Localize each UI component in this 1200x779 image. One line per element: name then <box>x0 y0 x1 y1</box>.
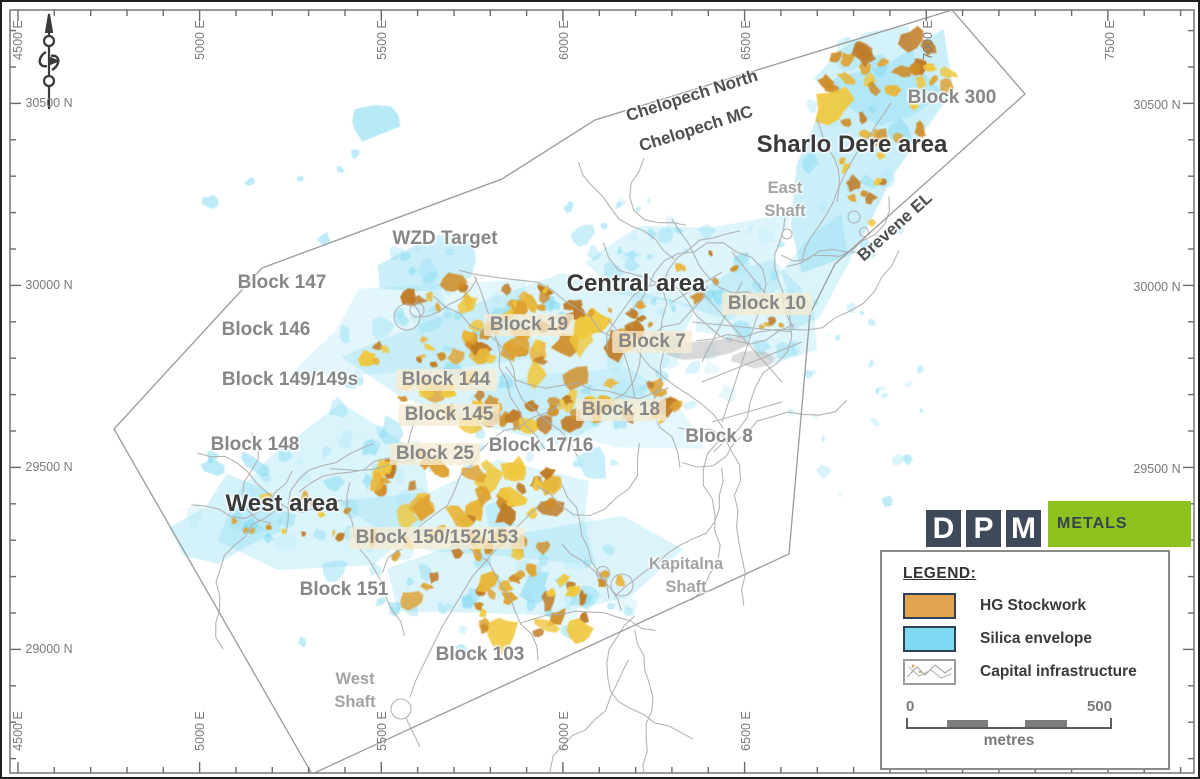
scale-numbers: 0 500 <box>906 698 1112 715</box>
map-label-block: Block 10 <box>722 293 812 315</box>
map-label-area: Sharlo Dere area <box>757 131 948 159</box>
grid-label-northing: 29500 N <box>1133 462 1180 476</box>
map-label-block: Block 17/16 <box>489 435 594 457</box>
map-label-block: Block 144 <box>396 369 497 391</box>
logo-wordmark-box: METALS <box>1048 501 1191 547</box>
logo-letter: M <box>1006 510 1041 547</box>
grid-label-easting: 6500 E <box>739 20 753 60</box>
grid-label-easting: 6000 E <box>557 20 571 60</box>
scale-bar: 0 500 metres <box>906 698 1112 750</box>
scale-bar-graphic <box>906 717 1112 729</box>
legend-item-hg-stockwork: HG Stockwork <box>903 593 1168 619</box>
legend-title: LEGEND: <box>903 565 1168 583</box>
grid-label-northing: 30000 N <box>1133 280 1180 294</box>
legend-label: HG Stockwork <box>980 597 1086 615</box>
grid-label-northing: 29000 N <box>25 642 72 656</box>
grid-label-easting: 6000 E <box>557 711 571 751</box>
grid-label-northing: 30000 N <box>25 278 72 292</box>
map-label-block: Block 149/149s <box>222 369 358 391</box>
map-label-shaft: EastShaft <box>764 177 805 223</box>
map-label-block: Block 19 <box>484 314 574 336</box>
map-label-block: Block 146 <box>222 319 311 341</box>
map-label-area: West area <box>226 490 339 518</box>
map-label-shaft: WestShaft <box>334 668 375 714</box>
grid-label-northing: 29500 N <box>25 460 72 474</box>
legend-panel: LEGEND: HG StockworkSilica envelopeCapit… <box>880 550 1170 770</box>
legend-swatch-capital-infrastructure <box>903 659 956 685</box>
map-label-block: Block 148 <box>211 434 300 456</box>
scale-start: 0 <box>906 698 914 715</box>
legend-label: Capital infrastructure <box>980 663 1137 681</box>
map-label-shaft: KapitalnaShaft <box>649 553 723 599</box>
grid-label-easting: 5000 E <box>193 711 207 751</box>
logo-wordmark: METALS <box>1057 515 1128 533</box>
logo-letter: P <box>966 510 1001 547</box>
scale-unit: metres <box>906 732 1112 750</box>
grid-label-northing: 30500 N <box>25 96 72 110</box>
map-label-block: Block 18 <box>576 399 666 421</box>
dpm-logo: DPM METALS <box>926 501 1191 547</box>
legend-swatch-silica-envelope <box>903 626 956 652</box>
grid-label-easting: 7500 E <box>1103 20 1117 60</box>
grid-label-easting: 5000 E <box>193 20 207 60</box>
map-label-block: Block 147 <box>238 272 327 294</box>
legend-swatch-hg-stockwork <box>903 593 956 619</box>
legend-item-capital-infrastructure: Capital infrastructure <box>903 659 1168 685</box>
map-label-block: Block 145 <box>399 404 500 426</box>
scale-end: 500 <box>1087 698 1112 715</box>
north-arrow-icon <box>40 14 59 109</box>
grid-label-easting: 6500 E <box>739 711 753 751</box>
logo-letters: DPM <box>926 510 1041 547</box>
legend-items: HG StockworkSilica envelopeCapital infra… <box>882 593 1168 685</box>
map-canvas: 4500 E5000 E5500 E6000 E6500 E7000 E7500… <box>0 0 1200 779</box>
grid-label-easting: 4500 E <box>11 711 25 751</box>
map-label-block: Block 150/152/153 <box>350 527 525 549</box>
grid-label-easting: 4500 E <box>11 20 25 60</box>
grid-label-northing: 30500 N <box>1133 98 1180 112</box>
map-label-block: Block 300 <box>908 87 997 109</box>
grid-label-easting: 5500 E <box>375 711 389 751</box>
logo-letter: D <box>926 510 961 547</box>
legend-item-silica-envelope: Silica envelope <box>903 626 1168 652</box>
map-label-block: Block 103 <box>436 644 525 666</box>
grid-label-easting: 7000 E <box>921 20 935 60</box>
map-label-block: Block 151 <box>300 579 389 601</box>
legend-label: Silica envelope <box>980 630 1092 648</box>
map-label-block: Block 8 <box>685 426 753 448</box>
map-label-block: WZD Target <box>392 228 497 250</box>
map-label-block: Block 7 <box>612 331 692 353</box>
map-label-block: Block 25 <box>390 443 480 465</box>
map-label-area: Central area <box>567 270 706 298</box>
grid-label-easting: 5500 E <box>375 20 389 60</box>
